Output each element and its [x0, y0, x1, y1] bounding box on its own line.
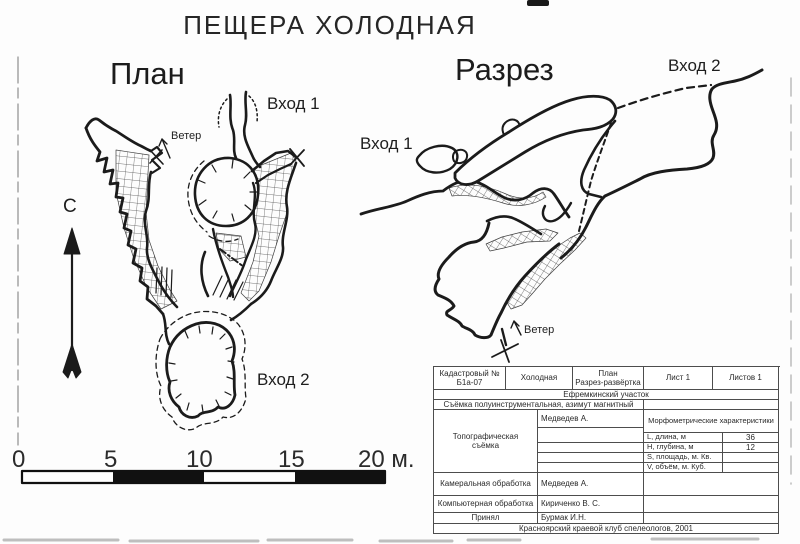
- cell-cadastral: Кадастровый № Б1а-07: [434, 367, 506, 390]
- section-entrance2-label: Вход 2: [668, 56, 721, 76]
- cell-topo-blank-2: [538, 443, 644, 453]
- cell-morpho-header: Морфометрические характеристики: [644, 410, 779, 433]
- plan-pit-outline: [195, 158, 258, 226]
- cell-office-label: Камеральная обработка: [434, 473, 538, 496]
- section-upper-gallery: [455, 96, 616, 184]
- cave-map-sheet: ПЕЩЕРА ХОЛОДНАЯ План Разрез Вход 1 Вход …: [0, 0, 800, 544]
- scale-tick-5: 5: [104, 446, 117, 474]
- cell-accepted-label: Принял: [434, 513, 538, 524]
- cell-office-empty: [644, 473, 779, 496]
- plan-entrance1-dotted-flare-left: [218, 99, 227, 127]
- cell-topo-blank-4: [538, 463, 644, 473]
- plan-entrance1-dotted-flare-right: [249, 96, 257, 122]
- plan-chamber-outline: [167, 322, 235, 417]
- scale-tick-15: 15: [278, 446, 305, 474]
- cell-area: Ефремкинский участок: [434, 390, 779, 400]
- cell-morpho-label-volume: V, объём, м. Куб.: [644, 463, 723, 473]
- plan-entrance1-label: Вход 1: [267, 94, 320, 114]
- plan-entrance1-left-wall: [230, 95, 236, 158]
- cell-topo-blank-1: [538, 428, 644, 443]
- plan-wind-label: Ветер: [171, 130, 201, 142]
- cadastral-label: Кадастровый №: [439, 369, 499, 378]
- cell-sheets: Листов 1: [713, 367, 779, 390]
- cell-morpho-label-depth: Н, глубина, м: [644, 443, 723, 453]
- scan-bottom-smudge: [4, 539, 758, 541]
- cadastral-value: Б1а-07: [457, 378, 483, 387]
- cell-morpho-label-area: S, площадь, м. Кв.: [644, 453, 723, 463]
- section-wind-label: Ветер: [524, 324, 554, 336]
- cell-accepted-value: Бурмак И.Н.: [538, 513, 644, 524]
- cell-computer-value: Кириченко В. С.: [538, 496, 644, 513]
- cell-morpho-value-length: 36: [723, 433, 779, 443]
- plan-entrance1-right-wall: [244, 92, 260, 167]
- scan-top-mark: [527, 0, 549, 6]
- plan-station-cross: [150, 150, 163, 164]
- plan-junction-wedge: [201, 252, 208, 296]
- cell-topo-blank-3: [538, 453, 644, 463]
- section-rock-blob-large: [417, 146, 458, 173]
- topo-label-line2: съёмка: [472, 441, 499, 450]
- drawing-type-line1: План: [598, 369, 617, 378]
- north-label: С: [63, 196, 77, 218]
- plan-entrance2-label: Вход 2: [257, 370, 310, 390]
- section-rock-blob-small: [453, 150, 467, 163]
- cell-morpho-value-area: [723, 453, 779, 463]
- scale-tick-10: 10: [186, 446, 213, 474]
- cell-morpho-value-depth: 12: [723, 443, 779, 453]
- cell-computer-empty: [644, 496, 779, 513]
- cell-topo-label: Топографическая съёмка: [434, 410, 538, 473]
- cell-topo-surveyor: Медведев А.: [538, 410, 644, 428]
- cell-morpho-value-volume: [723, 463, 779, 473]
- drawing-type-line2: Разрез-развёртка: [575, 378, 640, 387]
- north-arrow: [63, 228, 81, 378]
- topo-label-line1: Топографическая: [453, 432, 518, 441]
- cell-table-footer: Красноярский краевой клуб спелеологов, 2…: [434, 524, 779, 534]
- north-arrow-fletching: [63, 344, 81, 378]
- section-dashed-descent: [579, 123, 611, 231]
- section-drawing: [361, 70, 762, 362]
- cell-computer-label: Компьютерная обработка: [434, 496, 538, 513]
- cell-office-value: Медведев А.: [538, 473, 644, 496]
- cell-cave-name: Холодная: [506, 367, 573, 390]
- section-hatch-small-band: [486, 229, 558, 251]
- scale-tick-20: 20 м.: [358, 446, 415, 474]
- cell-morpho-label-length: L, длина, м: [644, 433, 723, 443]
- page-title: ПЕЩЕРА ХОЛОДНАЯ: [170, 10, 490, 41]
- cell-drawing-type: План Разрез-развёртка: [573, 367, 644, 390]
- cell-survey-note: Съёмка полуинструментальная, азимут магн…: [434, 400, 644, 410]
- section-heading: Разрез: [455, 52, 554, 88]
- scale-tick-0: 0: [12, 446, 25, 474]
- cell-survey-note-empty: [644, 400, 779, 410]
- section-wind-arrow: [511, 321, 521, 335]
- section-dashed-ceiling: [618, 85, 711, 108]
- cell-sheet: Лист 1: [644, 367, 713, 390]
- north-arrow-head: [64, 228, 80, 254]
- section-entrance1-label: Вход 1: [360, 134, 413, 154]
- survey-data-table: Кадастровый № Б1а-07 Холодная План Разре…: [433, 366, 780, 534]
- plan-neck-right-wall: [231, 304, 251, 320]
- plan-heading: План: [110, 56, 185, 92]
- cell-accepted-empty: [644, 513, 779, 524]
